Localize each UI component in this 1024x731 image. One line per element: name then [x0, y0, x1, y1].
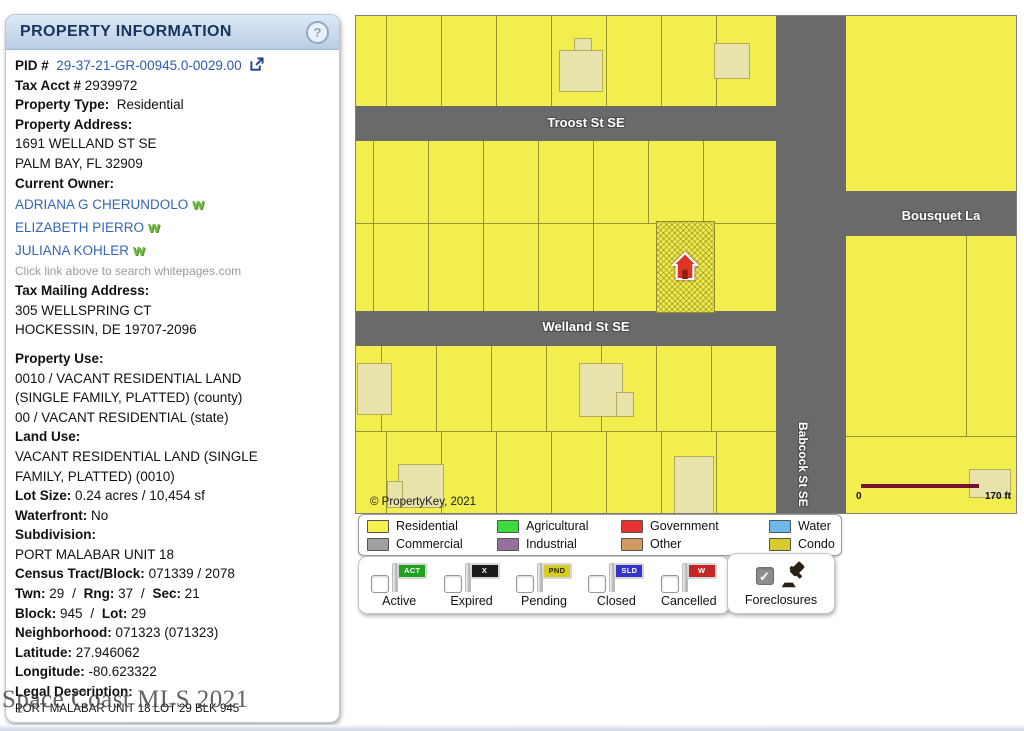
pending-flag-icon: PND: [537, 563, 572, 593]
property-use-line3: 00 / VACANT RESIDENTIAL (state): [15, 408, 331, 428]
panel-body: PID # 29-37-21-GR-00945.0-0029.00 Tax Ac…: [6, 50, 339, 717]
tax-mailing-line1: 305 WELLSPRING CT: [15, 301, 331, 321]
pid-link[interactable]: 29-37-21-GR-00945.0-0029.00: [56, 58, 241, 73]
legend-item-government: Government: [621, 518, 769, 534]
closed-flag-icon: SLD: [609, 563, 644, 593]
property-use-label: Property Use:: [15, 349, 331, 369]
longitude-row: Longitude: -80.623322: [15, 662, 331, 682]
building-footprint: [616, 392, 634, 417]
street-label-bousquet: Bousquet La: [876, 208, 1006, 223]
legend-item-condo: Condo: [769, 536, 833, 552]
lot-size-row: Lot Size: 0.24 acres / 10,454 sf: [15, 486, 331, 506]
scale-bar: [861, 484, 979, 488]
subject-house-icon: [671, 251, 699, 281]
active-flag-icon: ACT: [392, 563, 427, 593]
cancelled-checkbox[interactable]: [661, 575, 679, 593]
subdivision-value: PORT MALABAR UNIT 18: [15, 545, 331, 565]
building-footprint: [357, 363, 392, 415]
industrial-swatch: [497, 538, 519, 551]
gavel-icon: [777, 561, 807, 591]
legend-item-agricultural: Agricultural: [497, 518, 621, 534]
whitepages-note: Click link above to search whitepages.co…: [15, 263, 331, 279]
whitepages-icon[interactable]: w: [133, 242, 144, 259]
owner-row: ELIZABETH PIERROw: [15, 216, 331, 239]
legend-item-industrial: Industrial: [497, 536, 621, 552]
street-label-troost: Troost St SE: [506, 115, 666, 130]
listing-status-filters: ACT Active X Expired PND: [358, 556, 730, 614]
block-lot-row: Block: 945 / Lot: 29: [15, 604, 331, 624]
twn-rng-sec-row: Twn: 29 / Rng: 37 / Sec: 21: [15, 584, 331, 604]
whitepages-icon[interactable]: w: [148, 219, 159, 236]
property-type-row: Property Type: Residential: [15, 95, 331, 115]
tax-mailing-label: Tax Mailing Address:: [15, 281, 331, 301]
page-title: PROPERTY INFORMATION: [20, 23, 306, 41]
pid-label: PID #: [15, 58, 49, 73]
scale-start-label: 0: [856, 491, 862, 502]
help-icon[interactable]: ?: [306, 21, 329, 44]
page: PROPERTY INFORMATION ? PID # 29-37-21-GR…: [0, 0, 1024, 731]
legend-item-residential: Residential: [367, 518, 497, 534]
residential-swatch: [367, 520, 389, 533]
other-swatch: [621, 538, 643, 551]
external-link-icon[interactable]: [249, 57, 264, 72]
parcel-block: [846, 16, 1016, 191]
current-owner-label: Current Owner:: [15, 174, 331, 194]
foreclosures-filter: ✓ Foreclosures: [727, 553, 835, 614]
pid-row: PID # 29-37-21-GR-00945.0-0029.00: [15, 56, 331, 76]
owner-row: ADRIANA G CHERUNDOLOw: [15, 193, 331, 216]
agricultural-swatch: [497, 520, 519, 533]
tax-acct-row: Tax Acct # 2939972: [15, 76, 331, 96]
property-address-line2: PALM BAY, FL 32909: [15, 154, 331, 174]
government-swatch: [621, 520, 643, 533]
condo-swatch: [769, 538, 791, 551]
neighborhood-row: Neighborhood: 071323 (071323): [15, 623, 331, 643]
legend-item-commercial: Commercial: [367, 536, 497, 552]
building-footprint: [674, 456, 714, 514]
tax-mailing-line2: HOCKESSIN, DE 19707-2096: [15, 320, 331, 340]
cancelled-flag-icon: W: [682, 563, 717, 593]
latitude-row: Latitude: 27.946062: [15, 643, 331, 663]
legal-description-value: PORT MALABAR UNIT 18 LOT 29 BLK 945: [15, 702, 331, 717]
waterfront-row: Waterfront: No: [15, 506, 331, 526]
land-use-line2: FAMILY, PLATTED) (0010): [15, 467, 331, 487]
map-copyright: © PropertyKey, 2021: [370, 496, 476, 508]
status-item-expired: X Expired: [444, 563, 500, 608]
legal-description-label: Legal Description:: [15, 682, 331, 702]
expired-flag-icon: X: [465, 563, 500, 593]
property-address-line1: 1691 WELLAND ST SE: [15, 134, 331, 154]
panel-header: PROPERTY INFORMATION ?: [6, 15, 339, 50]
scale-end-label: 170 ft: [936, 491, 1011, 502]
street-label-welland: Welland St SE: [506, 319, 666, 334]
expired-checkbox[interactable]: [444, 575, 462, 593]
property-use-line1: 0010 / VACANT RESIDENTIAL LAND: [15, 369, 331, 389]
pending-checkbox[interactable]: [516, 575, 534, 593]
subdivision-label: Subdivision:: [15, 525, 331, 545]
status-item-pending: PND Pending: [516, 563, 572, 608]
bottom-bar: [0, 725, 1024, 731]
owner-row: JULIANA KOHLERw: [15, 239, 331, 262]
foreclosures-checkbox[interactable]: ✓: [756, 567, 774, 585]
property-use-line2: (SINGLE FAMILY, PLATTED) (county): [15, 388, 331, 408]
status-item-active: ACT Active: [371, 563, 427, 608]
active-checkbox[interactable]: [371, 575, 389, 593]
owner-link[interactable]: ADRIANA G CHERUNDOLO: [15, 197, 188, 212]
closed-checkbox[interactable]: [588, 575, 606, 593]
commercial-swatch: [367, 538, 389, 551]
land-use-line1: VACANT RESIDENTIAL LAND (SINGLE: [15, 447, 331, 467]
street-babcock: [776, 16, 846, 513]
status-item-closed: SLD Closed: [588, 563, 644, 608]
census-row: Census Tract/Block: 071339 / 2078: [15, 564, 331, 584]
owner-link[interactable]: ELIZABETH PIERRO: [15, 220, 144, 235]
street-label-babcock: Babcock St SE: [796, 416, 810, 513]
map-legend: Residential Commercial Agricultural Indu…: [358, 514, 842, 556]
building-footprint: [559, 50, 603, 92]
legend-item-other: Other: [621, 536, 769, 552]
legend-item-water: Water: [769, 518, 833, 534]
water-swatch: [769, 520, 791, 533]
building-footprint: [714, 43, 750, 79]
parcel-map[interactable]: Troost St SE Welland St SE Bousquet La B…: [355, 15, 1017, 514]
whitepages-icon[interactable]: w: [192, 196, 203, 213]
status-item-cancelled: W Cancelled: [661, 563, 717, 608]
property-info-panel: PROPERTY INFORMATION ? PID # 29-37-21-GR…: [5, 14, 340, 723]
land-use-label: Land Use:: [15, 427, 331, 447]
owner-link[interactable]: JULIANA KOHLER: [15, 243, 129, 258]
property-address-label: Property Address:: [15, 115, 331, 135]
